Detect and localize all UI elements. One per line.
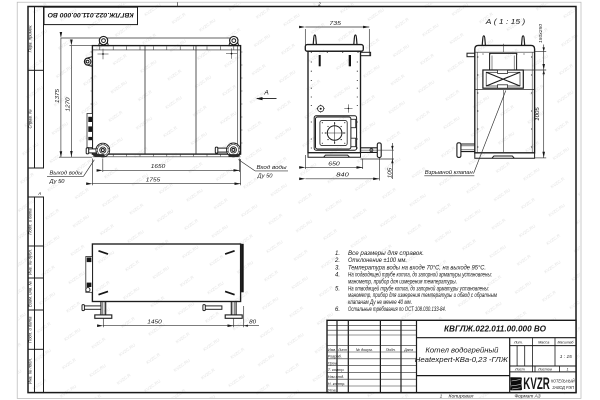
svg-text:840: 840 bbox=[336, 173, 349, 179]
svg-text:Справ. №: Справ. № bbox=[28, 109, 33, 128]
svg-text:KVZR: KVZR bbox=[523, 375, 550, 393]
svg-text:КВГЛЖ.022.011.00.000 ВО: КВГЛЖ.022.011.00.000 ВО bbox=[444, 324, 546, 334]
svg-text:5.: 5. bbox=[335, 286, 340, 292]
svg-text:Изм.: Изм. bbox=[328, 348, 337, 352]
svg-text:2.: 2. bbox=[334, 258, 340, 264]
svg-text:Перв. примен.: Перв. примен. bbox=[28, 25, 33, 53]
svg-text:Лит.: Лит. bbox=[513, 341, 523, 345]
svg-text:Т. контр.: Т. контр. bbox=[328, 367, 345, 372]
svg-text:Копировал: Копировал bbox=[449, 394, 475, 399]
svg-text:Утв.: Утв. bbox=[328, 387, 337, 392]
svg-text:КОТЕЛЬНЫЙ: КОТЕЛЬНЫЙ bbox=[551, 376, 575, 383]
svg-text:№ докум.: № докум. bbox=[356, 348, 373, 352]
svg-text:Инв. № подл.: Инв. № подл. bbox=[28, 358, 33, 384]
svg-text:А: А bbox=[263, 90, 269, 97]
svg-text:1.: 1. bbox=[335, 251, 340, 257]
svg-text:Нач.отд.: Нач.отд. bbox=[328, 374, 344, 379]
svg-text:манометр, прибор для измерения: манометр, прибор для измерения температу… bbox=[348, 293, 497, 299]
svg-text:150х250: 150х250 bbox=[538, 24, 544, 43]
svg-text:На подводящей трубе котла, до: На подводящей трубе котла, до запорной а… bbox=[348, 272, 492, 279]
svg-text:Выход воды: Выход воды bbox=[50, 170, 83, 176]
svg-text:1450: 1450 bbox=[147, 320, 162, 326]
svg-text:Heatexpert-КВа-0,23 -ГЛЖ: Heatexpert-КВа-0,23 -ГЛЖ bbox=[415, 355, 508, 364]
svg-text:650: 650 bbox=[328, 161, 340, 167]
svg-text:1270: 1270 bbox=[65, 97, 71, 111]
svg-text:Листов: Листов bbox=[537, 368, 552, 372]
svg-text:Подп. и дата: Подп. и дата bbox=[28, 208, 33, 235]
svg-text:1005: 1005 bbox=[535, 107, 541, 121]
svg-text:Разраб.: Разраб. bbox=[328, 354, 342, 359]
svg-text:1375: 1375 bbox=[55, 89, 61, 103]
svg-text:Ду 50: Ду 50 bbox=[256, 173, 272, 179]
svg-text:Дата: Дата bbox=[403, 348, 413, 352]
svg-text:1 : 15: 1 : 15 bbox=[560, 354, 572, 360]
svg-text:Инв. № дубл.: Инв. № дубл. bbox=[28, 249, 33, 275]
svg-text:Взам. инв. №: Взам. инв. № bbox=[28, 281, 33, 307]
svg-text:Лист: Лист bbox=[514, 368, 525, 372]
svg-text:105: 105 bbox=[387, 167, 393, 178]
svg-text:1650: 1650 bbox=[151, 164, 166, 170]
svg-text:1755: 1755 bbox=[146, 178, 161, 184]
svg-text:Вход воды: Вход воды bbox=[257, 165, 287, 171]
svg-text:80: 80 bbox=[249, 320, 256, 326]
svg-text:Все размеры для справок.: Все размеры для справок. bbox=[348, 251, 424, 257]
svg-text:3.: 3. bbox=[335, 266, 340, 272]
svg-text:735: 735 bbox=[329, 21, 341, 27]
svg-text:1: 1 bbox=[567, 368, 569, 372]
svg-text:Пров.: Пров. bbox=[328, 360, 338, 365]
svg-text:клапанам Ду не менее 40 мм.: клапанам Ду не менее 40 мм. bbox=[348, 300, 412, 306]
svg-text:Остальные требования по ОСТ 10: Остальные требования по ОСТ 108.030.133-… bbox=[348, 307, 446, 313]
svg-text:манометр, прибор для измерения: манометр, прибор для измерения температу… bbox=[348, 280, 457, 286]
svg-text:Н. контр.: Н. контр. bbox=[328, 381, 346, 386]
svg-text:6.: 6. bbox=[335, 307, 340, 313]
svg-text:Ду 50: Ду 50 bbox=[48, 179, 64, 185]
svg-text:4.: 4. bbox=[335, 273, 340, 279]
svg-text:Масса: Масса bbox=[538, 341, 549, 345]
svg-text:Формат А3: Формат А3 bbox=[515, 394, 542, 399]
svg-text:ЗАВОД РЭП: ЗАВОД РЭП bbox=[552, 385, 574, 390]
svg-text:Лист: Лист bbox=[337, 348, 347, 352]
svg-text:КВГЛЖ.022.011.00.000 ВО: КВГЛЖ.022.011.00.000 ВО bbox=[47, 11, 134, 18]
svg-text:2: 2 bbox=[317, 1, 321, 6]
svg-text:Подп. и дата: Подп. и дата bbox=[28, 316, 33, 343]
svg-text:Масштаб: Масштаб bbox=[558, 341, 575, 345]
svg-text:Отклонение ±100 мм.: Отклонение ±100 мм. bbox=[348, 258, 407, 264]
svg-text:Температура воды на входе 70°С: Температура воды на входе 70°С, на выход… bbox=[348, 266, 486, 272]
svg-text:А: А bbox=[37, 191, 41, 196]
svg-text:Котел водогрейный: Котел водогрейный bbox=[425, 346, 498, 355]
svg-text:Взрывной клапан: Взрывной клапан bbox=[425, 169, 473, 176]
svg-text:На отводящей трубе котла, до з: На отводящей трубе котла, до запорной ар… bbox=[348, 285, 489, 292]
svg-text:А ( 1 : 15 ): А ( 1 : 15 ) bbox=[485, 19, 526, 26]
svg-text:Подп.: Подп. bbox=[386, 348, 396, 352]
